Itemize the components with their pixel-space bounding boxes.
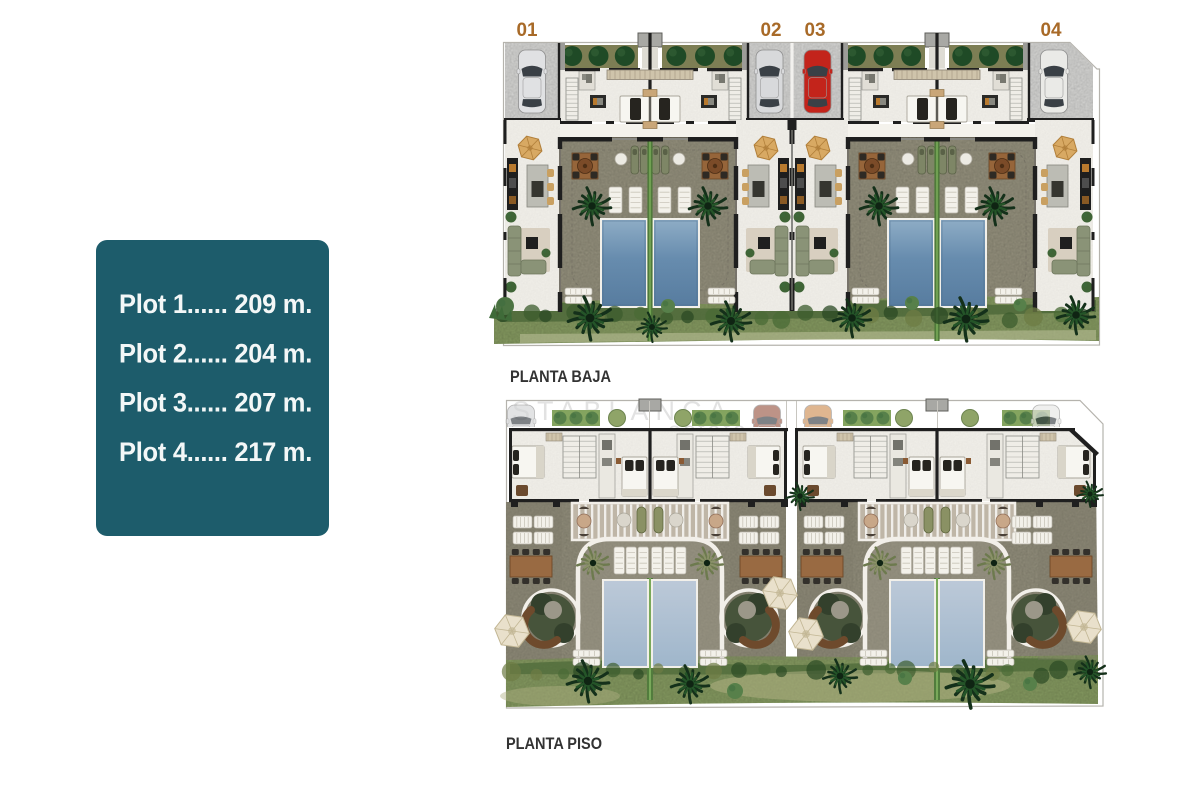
svg-text:02: 02 bbox=[761, 20, 782, 41]
svg-text:Plot 2...... 204 m.: Plot 2...... 204 m. bbox=[119, 338, 312, 368]
svg-text:01: 01 bbox=[517, 20, 538, 41]
svg-text:04: 04 bbox=[1041, 20, 1062, 41]
svg-text:Plot 4...... 217 m.: Plot 4...... 217 m. bbox=[119, 437, 312, 467]
svg-text:Plot 3...... 207 m.: Plot 3...... 207 m. bbox=[119, 388, 312, 418]
svg-text:PLANTA BAJA: PLANTA BAJA bbox=[510, 367, 611, 386]
svg-text:Plot 1...... 209 m.: Plot 1...... 209 m. bbox=[119, 289, 312, 319]
svg-text:03: 03 bbox=[805, 20, 826, 41]
svg-text:PLANTA PISO: PLANTA PISO bbox=[506, 734, 602, 753]
